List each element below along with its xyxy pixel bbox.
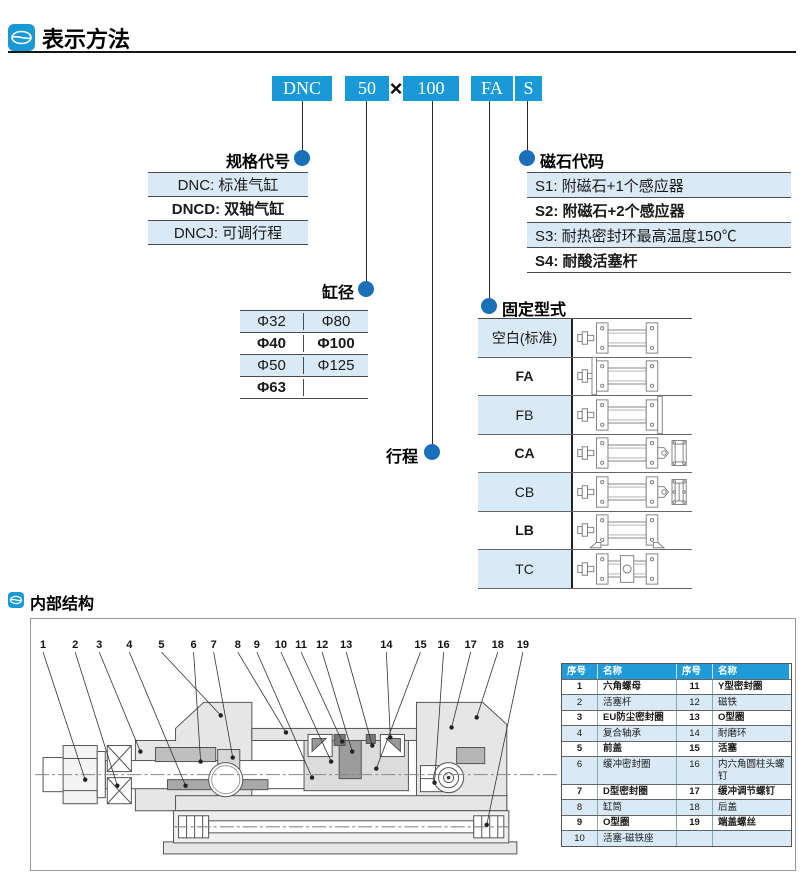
mounting-row: FB xyxy=(478,396,692,435)
callout-label: 6 xyxy=(191,639,197,651)
parts-row: 6缓冲密封圈16内六角圆柱头螺钉 xyxy=(562,757,791,785)
internal-structure-title: 内部结构 xyxy=(30,590,94,614)
brand-logo-glyph xyxy=(8,24,35,51)
mounting-drawing-blank xyxy=(573,319,690,357)
part-number: 8 xyxy=(562,800,598,815)
parts-row: 3EU防尘密封圈13O型圈 xyxy=(562,711,791,727)
bore-title: 缸径 xyxy=(296,279,354,303)
parts-header-cell: 名称 xyxy=(598,664,677,679)
part-name: 耐磨环 xyxy=(713,726,789,741)
bore-row-cell: Φ80 xyxy=(304,313,368,330)
model-segment-mounting: FA xyxy=(471,76,513,101)
connector-dot-mounting xyxy=(481,298,497,314)
magnet-row: S1: 附磁石+1个感应器 xyxy=(527,173,791,198)
part-number: 19 xyxy=(677,816,713,831)
callout-label: 12 xyxy=(316,639,328,651)
mounting-type-label: CB xyxy=(478,473,573,511)
spec-title: 规格代号 xyxy=(180,148,290,172)
parts-table-header: 序号名称序号名称 xyxy=(562,664,791,680)
part-number: 11 xyxy=(677,680,713,695)
connector-line-mounting xyxy=(489,101,490,299)
parts-row: 7D型密封圈17缓冲调节螺钉 xyxy=(562,785,791,801)
part-name: D型密封圈 xyxy=(598,785,677,800)
part-name: 活塞杆 xyxy=(598,695,677,710)
part-number: 13 xyxy=(677,711,713,726)
bore-table: Φ32Φ80Φ40Φ100Φ50Φ125Φ63 xyxy=(240,310,368,399)
connector-line-magnet xyxy=(527,101,528,151)
parts-row: 5前盖15活塞 xyxy=(562,742,791,758)
part-number: 1 xyxy=(562,680,598,695)
magnet-row: S2: 附磁石+2个感应器 xyxy=(527,198,791,223)
part-name: 前盖 xyxy=(598,742,677,757)
part-number: 6 xyxy=(562,757,598,784)
callout-label: 10 xyxy=(275,639,287,651)
title-rule xyxy=(8,51,796,53)
callout-label: 2 xyxy=(72,639,78,651)
part-name: 活塞 xyxy=(713,742,789,757)
parts-row: 1六角螺母11Y型密封圈 xyxy=(562,680,791,696)
callout-label: 3 xyxy=(96,639,102,651)
part-number: 4 xyxy=(562,726,598,741)
part-name xyxy=(713,831,789,846)
callout-label: 9 xyxy=(254,639,260,651)
bore-row-cell: Φ100 xyxy=(304,335,368,352)
callout-label: 5 xyxy=(158,639,164,651)
part-name: 内六角圆柱头螺钉 xyxy=(713,757,789,784)
brand-logo-icon xyxy=(8,24,35,51)
part-name: O型圈 xyxy=(598,816,677,831)
parts-header-cell: 名称 xyxy=(713,664,789,679)
callout-label: 18 xyxy=(492,639,504,651)
bore-row-cell: Φ63 xyxy=(240,379,304,396)
part-name: 六角螺母 xyxy=(598,680,677,695)
part-number: 15 xyxy=(677,742,713,757)
mounting-table: 空白(标准)FAFBCACBLBTC xyxy=(478,318,692,589)
mounting-type-label: CA xyxy=(478,435,573,473)
bore-row: Φ50Φ125 xyxy=(240,355,368,377)
bore-row-cell: Φ50 xyxy=(240,357,304,374)
mounting-type-label: 空白(标准) xyxy=(478,319,573,357)
part-name: EU防尘密封圈 xyxy=(598,711,677,726)
part-name: 缓冲调节螺钉 xyxy=(713,785,789,800)
mounting-drawing-ca xyxy=(573,435,690,473)
part-number: 9 xyxy=(562,816,598,831)
mounting-row: FA xyxy=(478,358,692,397)
section-logo-glyph xyxy=(8,592,24,608)
part-name: 磁铁 xyxy=(713,695,789,710)
part-name: 活塞-磁铁座 xyxy=(598,831,677,846)
mounting-row: 空白(标准) xyxy=(478,319,692,358)
callout-label: 14 xyxy=(380,639,393,651)
bore-row-cell: Φ125 xyxy=(304,357,368,374)
part-number: 2 xyxy=(562,695,598,710)
connector-dot-magnet xyxy=(519,150,535,166)
parts-header-cell: 序号 xyxy=(677,664,713,679)
part-number xyxy=(677,831,713,846)
connector-line-stroke xyxy=(432,101,433,445)
bore-row-cell: Φ32 xyxy=(240,313,304,330)
parts-row: 10活塞-磁铁座 xyxy=(562,831,791,846)
section-logo-icon xyxy=(8,592,24,608)
magnet-row: S4: 耐酸活塞杆 xyxy=(527,248,791,273)
callout-label: 16 xyxy=(437,639,449,651)
mounting-row: CB xyxy=(478,473,692,512)
callout-label: 8 xyxy=(235,639,241,651)
spec-table: DNC: 标准气缸DNCD: 双轴气缸DNCJ: 可调行程 xyxy=(148,172,308,245)
spec-row: DNCJ: 可调行程 xyxy=(148,221,308,245)
magnet-row: S3: 耐热密封环最高温度150℃ xyxy=(527,223,791,248)
magnet-table: S1: 附磁石+1个感应器S2: 附磁石+2个感应器S3: 耐热密封环最高温度1… xyxy=(527,172,791,273)
model-segment-stroke: 100 xyxy=(403,76,459,101)
parts-table: 序号名称序号名称1六角螺母11Y型密封圈2活塞杆12磁铁3EU防尘密封圈13O型… xyxy=(561,663,792,847)
spec-row: DNC: 标准气缸 xyxy=(148,173,308,197)
magnet-title: 磁石代码 xyxy=(540,148,604,172)
model-segment-series: DNC xyxy=(272,76,332,101)
mounting-drawing-tc xyxy=(573,550,690,588)
catalog-page: 表示方法 DNC 50 × 100 FA S 规格代号 磁石代码 缸径 固定型式… xyxy=(0,0,800,876)
part-name: 端盖螺丝 xyxy=(713,816,789,831)
mounting-type-label: LB xyxy=(478,512,573,550)
mounting-drawing-fb xyxy=(573,396,690,434)
callout-label: 11 xyxy=(295,639,307,651)
multiply-sign: × xyxy=(386,76,406,101)
part-name: O型圈 xyxy=(713,711,789,726)
callout-label: 1 xyxy=(40,639,46,651)
part-number: 17 xyxy=(677,785,713,800)
parts-row: 2活塞杆12磁铁 xyxy=(562,695,791,711)
cylinder-cross-section: 12345678910111213141516171819 xyxy=(35,627,557,863)
spec-row: DNCD: 双轴气缸 xyxy=(148,197,308,221)
part-name: 缓冲密封圈 xyxy=(598,757,677,784)
mounting-title: 固定型式 xyxy=(502,296,566,320)
page-title: 表示方法 xyxy=(42,22,130,54)
part-number: 14 xyxy=(677,726,713,741)
parts-row: 4复合轴承14耐磨环 xyxy=(562,726,791,742)
mounting-drawing-cb xyxy=(573,473,690,511)
part-name: 缸筒 xyxy=(598,800,677,815)
connector-dot-stroke xyxy=(424,444,440,460)
callout-label: 19 xyxy=(517,639,529,651)
stroke-title: 行程 xyxy=(368,443,418,467)
part-number: 3 xyxy=(562,711,598,726)
part-number: 5 xyxy=(562,742,598,757)
bore-row: Φ40Φ100 xyxy=(240,333,368,355)
callout-label: 17 xyxy=(465,639,477,651)
bore-row-cell: Φ40 xyxy=(240,335,304,352)
mounting-type-label: FA xyxy=(478,358,573,396)
parts-row: 9O型圈19端盖螺丝 xyxy=(562,816,791,832)
part-name: 复合轴承 xyxy=(598,726,677,741)
parts-row: 8缸筒18后盖 xyxy=(562,800,791,816)
mounting-type-label: FB xyxy=(478,396,573,434)
part-number: 7 xyxy=(562,785,598,800)
connector-dot-spec xyxy=(294,150,310,166)
mounting-type-label: TC xyxy=(478,550,573,588)
connector-line-spec xyxy=(302,101,303,151)
connector-dot-bore xyxy=(358,281,374,297)
model-segment-magnet: S xyxy=(515,76,542,101)
part-name: 后盖 xyxy=(713,800,789,815)
callout-label: 4 xyxy=(126,639,133,651)
part-name: Y型密封圈 xyxy=(713,680,789,695)
callout-label: 13 xyxy=(340,639,352,651)
bore-row: Φ32Φ80 xyxy=(240,311,368,333)
mounting-drawing-lb xyxy=(573,512,690,550)
internal-structure-panel: 12345678910111213141516171819 序号名称序号名称1六… xyxy=(30,618,796,871)
model-segment-bore: 50 xyxy=(345,76,389,101)
connector-line-bore xyxy=(366,101,367,282)
part-number: 16 xyxy=(677,757,713,784)
mounting-row: LB xyxy=(478,512,692,551)
part-number: 10 xyxy=(562,831,598,846)
callout-label: 15 xyxy=(414,639,426,651)
part-number: 12 xyxy=(677,695,713,710)
bore-row: Φ63 xyxy=(240,377,368,399)
mounting-row: TC xyxy=(478,550,692,589)
model-code-row: DNC 50 × 100 FA S xyxy=(272,76,542,101)
callout-label: 7 xyxy=(211,639,217,651)
mounting-drawing-fa xyxy=(573,358,690,396)
part-number: 18 xyxy=(677,800,713,815)
mounting-row: CA xyxy=(478,435,692,474)
parts-header-cell: 序号 xyxy=(562,664,598,679)
